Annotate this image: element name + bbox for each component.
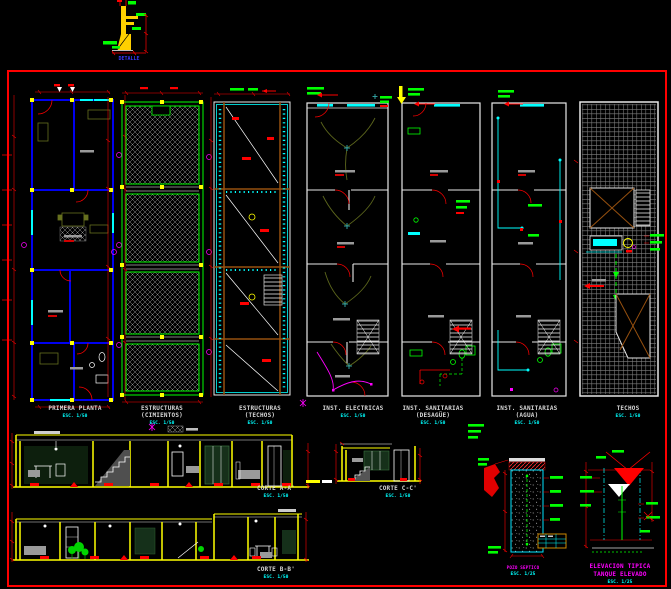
foundation-hatch [126,106,199,391]
window-wall [205,446,229,484]
section-note [34,431,60,434]
window-wall [135,528,155,554]
plan2-scale: ESC. 1/50 [150,420,175,426]
hatch-area [60,227,86,241]
plan6-subtitle: (AGUA) [516,412,539,419]
legend-text-bar [186,428,198,431]
plan6-scale: ESC. 1/50 [515,420,540,426]
plan1-scale: ESC. 1/50 [63,413,88,419]
slab-cap [509,462,545,470]
vent-arrow [399,86,403,97]
water-tank [593,239,617,246]
section-note [278,509,296,512]
corte-cc-scale: ESC. 1/50 [386,493,411,499]
plan6-title: INST. SANITARIAS [497,405,558,412]
plan1-title: PRIMERA PLANTA [48,405,102,412]
corte-cc-title: CORTE C-C' [379,485,417,492]
wall-section [121,6,126,35]
legend-hatch-swatch [168,426,183,432]
plan3-subtitle: (TECHOS) [245,412,276,419]
plan2-subtitle: (CIMIENTOS) [141,412,183,419]
bed [24,546,46,555]
plan5-subtitle: (DESAGÜE) [416,412,450,419]
stairs [636,190,650,226]
cad-sheet: DETALLE PRIMERA PLANTA ESC. 1/50 ESTRUCT… [0,0,671,589]
top-detail-label: DETALLE [118,56,139,62]
plan2-title: ESTRUCTURAS [141,405,183,412]
stairs [264,275,282,305]
tanque-scale: ESC. 1/25 [608,579,633,585]
plan4-title: INST. ELECTRICAS [323,405,384,412]
detail-note [128,1,136,5]
corte-aa-scale: ESC. 1/50 [264,493,289,499]
valve [497,180,500,183]
plan-cimientos [106,87,213,404]
pozo-scale: ESC. 1/25 [511,571,536,577]
corte-aa-title: CORTE A-A' [257,485,295,492]
corte-bb-scale: ESC. 1/50 [264,574,289,580]
tanque-title-1: ELEVACION TIPICA [590,563,651,570]
plan4-scale: ESC. 1/50 [341,413,366,419]
tanque-title-2: TANQUE ELEVADO [593,571,647,578]
plan5-title: INST. SANITARIAS [403,405,464,412]
plan5-scale: ESC. 1/50 [421,420,446,426]
corte-bb-title: CORTE B-B' [257,566,295,573]
plan3-scale: ESC. 1/50 [248,420,273,426]
cad-canvas: DETALLE PRIMERA PLANTA ESC. 1/50 ESTRUCT… [0,0,671,589]
plan-techos [574,102,664,396]
plan7-scale: ESC. 1/50 [616,413,641,419]
foundation-notch [152,106,170,115]
plan7-title: TECHOS [617,405,640,412]
plan3-title: ESTRUCTURAS [239,405,281,412]
bed [238,470,260,479]
pozo-title: POZO SEPTICO [507,565,540,570]
